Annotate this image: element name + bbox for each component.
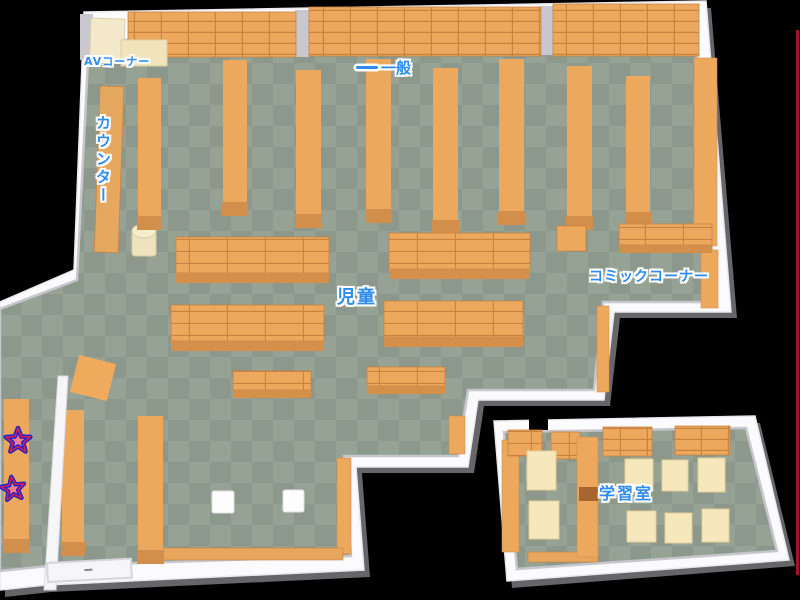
study-room-divider: [577, 437, 598, 557]
chair: [212, 491, 234, 513]
label-general: 一般: [356, 57, 411, 78]
chair: [283, 490, 304, 512]
label-counter: カウンター: [93, 115, 114, 205]
wall-gap: [295, 10, 309, 57]
label-children: 児童: [337, 283, 377, 309]
bookshelf-vertical-rows-bottom: [3, 399, 164, 564]
label-pointer-line: [356, 66, 378, 69]
bookshelf-wall-strip: [449, 416, 465, 454]
floor-map-canvas: [0, 0, 800, 600]
label-general-text: 一般: [381, 57, 411, 78]
bookshelf-wall-strip: [337, 458, 351, 554]
label-comic-corner: コミックコーナー: [589, 266, 709, 286]
label-av-corner: AVコーナー: [84, 53, 150, 69]
bookshelf-wall-strip: [160, 548, 343, 560]
library-floor-map: AVコーナー 一般 カウンター 児童 コミックコーナー 学習室: [0, 0, 800, 600]
entrance-door: [47, 559, 132, 582]
label-study-room: 学習室: [599, 480, 653, 504]
wall-bookshelf-bank: [128, 4, 699, 57]
map-edge-line: [796, 30, 799, 575]
wall-gap: [540, 6, 553, 55]
study-room-doorway: [529, 416, 548, 430]
